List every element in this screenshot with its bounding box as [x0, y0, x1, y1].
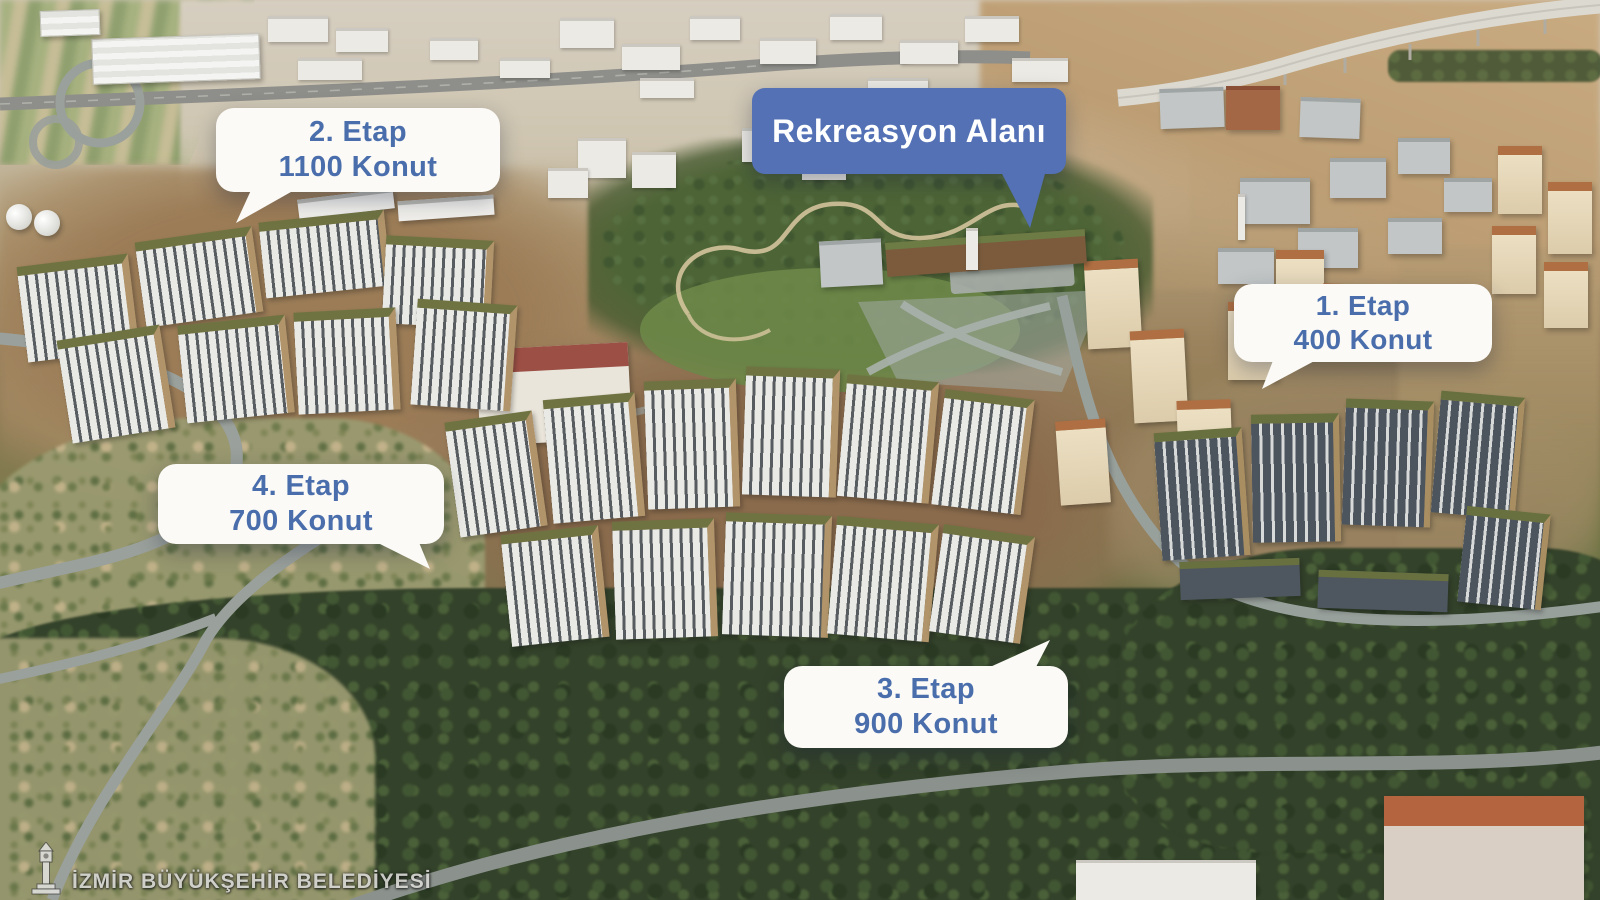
building [1317, 570, 1448, 613]
building [1444, 178, 1492, 212]
building [410, 299, 517, 412]
building [827, 516, 939, 642]
building [760, 38, 816, 64]
building [444, 410, 547, 537]
callout-etap2-line1: 2. Etap [309, 116, 407, 149]
building [644, 378, 740, 509]
building [397, 195, 494, 222]
building [1159, 87, 1224, 129]
callout-etap2-line2: 1100 Konut [279, 151, 438, 184]
callout-etap4-line2: 700 Konut [229, 505, 373, 538]
building [819, 238, 883, 287]
building [1179, 558, 1300, 600]
building [336, 28, 388, 52]
building [1548, 182, 1592, 254]
building [298, 58, 362, 80]
building [966, 228, 978, 270]
building [1498, 146, 1542, 214]
callout-etap2: 2. Etap 1100 Konut [216, 108, 500, 192]
building [632, 152, 676, 188]
aerial-site-view: 2. Etap 1100 Konut Rekreasyon Alanı 1. E… [0, 0, 1600, 900]
building [430, 38, 478, 60]
callout-etap3-line1: 3. Etap [877, 673, 975, 706]
building [965, 16, 1019, 42]
izmir-clock-tower-icon [26, 842, 66, 896]
callout-etap3-line2: 900 Konut [854, 708, 998, 741]
building [1384, 796, 1584, 900]
building [268, 16, 328, 42]
building [1012, 58, 1068, 82]
building [1299, 97, 1360, 139]
callout-rekreasyon-label: Rekreasyon Alanı [772, 113, 1046, 150]
callout-etap1: 1. Etap 400 Konut [1234, 284, 1492, 362]
callout-etap3: 3. Etap 900 Konut [784, 666, 1068, 748]
building [1238, 194, 1245, 240]
building [6, 204, 32, 230]
building [837, 374, 939, 504]
building [1226, 86, 1280, 130]
municipality-watermark: İZMİR BÜYÜKŞEHİR BELEDİYESİ [26, 842, 432, 896]
building [1076, 860, 1256, 900]
building [1240, 178, 1310, 224]
building [931, 389, 1034, 515]
building [900, 40, 958, 64]
building [293, 307, 400, 414]
building [1431, 391, 1525, 520]
building [742, 366, 840, 497]
building [258, 210, 391, 299]
building [1388, 218, 1442, 254]
building [1398, 138, 1450, 174]
building [91, 33, 261, 85]
building [1457, 506, 1551, 610]
building [640, 78, 694, 98]
municipality-watermark-text: İZMİR BÜYÜKŞEHİR BELEDİYESİ [72, 870, 432, 896]
building [690, 16, 740, 40]
building [1342, 399, 1434, 528]
building [135, 226, 264, 328]
building [500, 525, 609, 647]
callout-rekreasyon: Rekreasyon Alanı [752, 88, 1066, 174]
building [1218, 248, 1274, 284]
callout-etap1-line2: 400 Konut [1294, 324, 1433, 356]
building [543, 392, 645, 524]
building [177, 315, 295, 424]
building [830, 14, 882, 40]
building [34, 210, 60, 236]
building [1251, 413, 1341, 543]
building [1154, 427, 1251, 561]
building [1330, 158, 1386, 198]
building [1055, 418, 1111, 505]
building [622, 44, 680, 70]
building [560, 18, 614, 48]
building [929, 524, 1035, 644]
callout-etap1-line1: 1. Etap [1316, 290, 1411, 322]
building [1544, 262, 1588, 328]
callout-etap4-line1: 4. Etap [252, 470, 350, 503]
building [722, 512, 832, 638]
building [1492, 226, 1536, 294]
building [612, 518, 718, 639]
building [40, 9, 101, 37]
building [885, 229, 1087, 277]
building [548, 168, 588, 198]
building [500, 58, 550, 78]
building [57, 325, 176, 444]
callout-etap4: 4. Etap 700 Konut [158, 464, 444, 544]
